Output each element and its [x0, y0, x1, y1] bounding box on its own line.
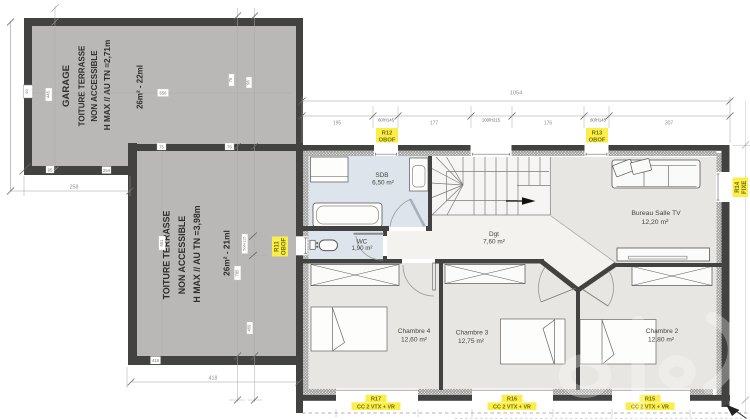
svg-text:GARAGE: GARAGE [61, 64, 72, 107]
svg-text:1,90 m²: 1,90 m² [352, 245, 373, 252]
svg-text:R17: R17 [371, 397, 381, 403]
svg-text:459: 459 [247, 324, 252, 332]
svg-text:1054: 1054 [510, 91, 522, 97]
svg-text:60/H145: 60/H145 [590, 118, 607, 123]
svg-text:12,60 m²: 12,60 m² [401, 337, 428, 344]
svg-text:95: 95 [48, 168, 53, 173]
svg-text:445: 445 [46, 90, 51, 98]
svg-text:96: 96 [246, 80, 251, 85]
svg-text:76: 76 [228, 77, 233, 82]
svg-text:CC 2 VTX + VR: CC 2 VTX + VR [493, 405, 531, 411]
svg-text:R14: R14 [735, 181, 741, 193]
svg-text:OBOF: OBOF [379, 138, 396, 144]
svg-text:418: 418 [209, 376, 218, 382]
svg-text:NON ACCESSIBLE: NON ACCESSIBLE [90, 50, 99, 122]
svg-text:60/H145: 60/H145 [378, 118, 395, 123]
svg-text:656: 656 [160, 91, 168, 96]
svg-text:OBOF: OBOF [589, 138, 606, 144]
svg-text:195: 195 [333, 121, 342, 127]
svg-text:651: 651 [159, 239, 164, 247]
svg-text:R11: R11 [275, 241, 281, 252]
svg-text:7,60 m²: 7,60 m² [483, 239, 505, 246]
svg-text:Dgt: Dgt [489, 231, 499, 238]
svg-text:CC 2 VTX + VR: CC 2 VTX + VR [357, 405, 395, 411]
svg-text:785: 785 [234, 269, 239, 277]
svg-text:Bureau Salle TV: Bureau Salle TV [631, 210, 681, 217]
svg-text:177: 177 [430, 121, 439, 127]
svg-text:50/H115: 50/H115 [243, 237, 247, 251]
svg-text:100/H215: 100/H215 [482, 118, 501, 123]
svg-text:NON ACCESSIBLE: NON ACCESSIBLE [177, 216, 187, 294]
svg-text:Chambre 3: Chambre 3 [456, 330, 489, 337]
svg-text:418: 418 [152, 358, 160, 363]
svg-text:SDB: SDB [375, 172, 388, 179]
svg-text:76: 76 [227, 145, 232, 150]
svg-text:12,80 m²: 12,80 m² [648, 337, 675, 344]
svg-text:R13: R13 [592, 131, 603, 137]
svg-text:26m² - 22ml: 26m² - 22ml [136, 65, 145, 109]
svg-text:H MAX // AU TN =3,98m: H MAX // AU TN =3,98m [192, 205, 202, 302]
svg-text:176: 176 [544, 121, 553, 127]
svg-text:OBOF: OBOF [282, 238, 288, 256]
svg-text:FIXE: FIXE [742, 181, 748, 194]
svg-text:75: 75 [159, 145, 164, 150]
svg-text:12,75 m²: 12,75 m² [458, 338, 485, 345]
svg-text:12,20 m²: 12,20 m² [642, 219, 670, 226]
svg-text:Chambre 4: Chambre 4 [398, 328, 431, 335]
svg-text:R15: R15 [645, 397, 655, 403]
svg-text:6,50 m²: 6,50 m² [372, 180, 394, 187]
svg-text:TOITURE TERRASSE: TOITURE TERRASSE [162, 210, 172, 299]
svg-text:R12: R12 [382, 131, 393, 137]
svg-text:26m² - 21ml: 26m² - 21ml [222, 230, 232, 276]
svg-text:TOITURE TERRASSE: TOITURE TERRASSE [78, 45, 87, 126]
svg-text:Chambre 2: Chambre 2 [646, 328, 679, 335]
svg-text:R16: R16 [507, 397, 517, 403]
svg-text:90: 90 [24, 89, 29, 94]
svg-text:254: 254 [103, 168, 111, 173]
svg-text:307: 307 [665, 121, 674, 127]
svg-text:258: 258 [70, 185, 79, 191]
svg-text:H MAX // AU TN =2,71m: H MAX // AU TN =2,71m [103, 40, 112, 130]
